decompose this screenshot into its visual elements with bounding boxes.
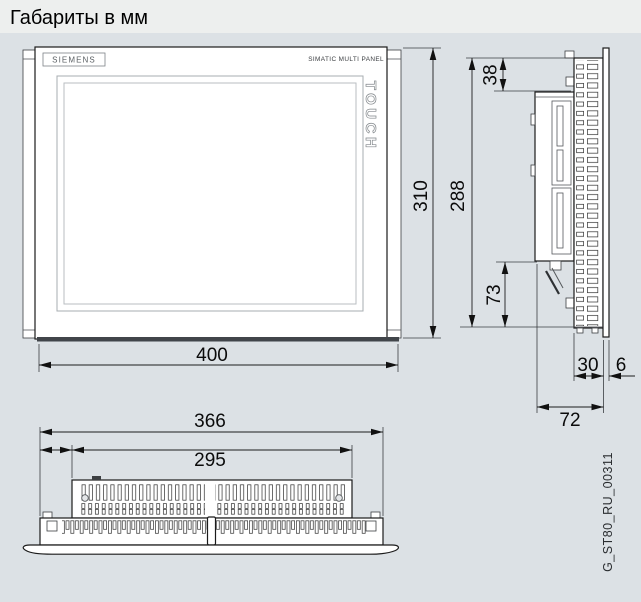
screw-hole-right	[336, 495, 343, 502]
touchscreen	[64, 83, 356, 304]
vent-depth-value: 30	[577, 355, 598, 376]
vent-row2-right	[215, 503, 345, 515]
flange-tab-left	[43, 512, 52, 518]
siemens-logo: SIEMENS	[52, 56, 96, 65]
vent-row-right	[215, 484, 345, 501]
flange-detail-left	[47, 521, 57, 531]
side-top-inset-value: 38	[481, 64, 502, 85]
vent-grid-side	[575, 60, 603, 326]
page-title: Габариты в мм	[10, 7, 148, 29]
touch-label: TOUCH	[362, 81, 379, 152]
overall-width-value: 366	[194, 411, 226, 432]
front-view: SIEMENS SIMATIC MULTI PANEL TOUCH	[23, 47, 401, 342]
front-bezel-edge	[603, 48, 609, 337]
product-label: SIMATIC MULTI PANEL	[308, 56, 384, 63]
center-divider	[208, 517, 216, 545]
body-width-value: 295	[194, 450, 226, 471]
front-width-value: 400	[196, 345, 228, 366]
top-tab	[92, 476, 101, 480]
bottom-view	[23, 476, 398, 554]
side-bottom-inset-value: 73	[484, 284, 505, 305]
rear-housing	[535, 92, 574, 261]
vent-row-left	[80, 484, 205, 501]
bezel-bottom-shadow	[37, 337, 399, 342]
drawing-code: G_ST80_RU_00311	[601, 452, 615, 572]
screw-hole-left	[82, 495, 89, 502]
flange-vents-left	[62, 519, 207, 544]
vent-row2-left	[80, 503, 205, 515]
side-height-value: 288	[448, 180, 469, 212]
mount-strip-right	[387, 50, 401, 338]
flange-detail-right	[366, 521, 376, 531]
flange-vents-right	[216, 519, 366, 544]
dimension-drawing: Габариты в мм SIEMENS SIMATIC MULTI PANE…	[0, 0, 641, 602]
bezel-edge-bottom	[23, 545, 398, 554]
flange-tab-right	[371, 512, 380, 518]
bezel-thickness-value: 6	[616, 355, 627, 376]
front-height-value: 310	[411, 180, 432, 212]
mounting-depth-value: 72	[559, 410, 580, 431]
dimension-drawing-page: Габариты в мм SIEMENS SIMATIC MULTI PANE…	[0, 0, 641, 602]
